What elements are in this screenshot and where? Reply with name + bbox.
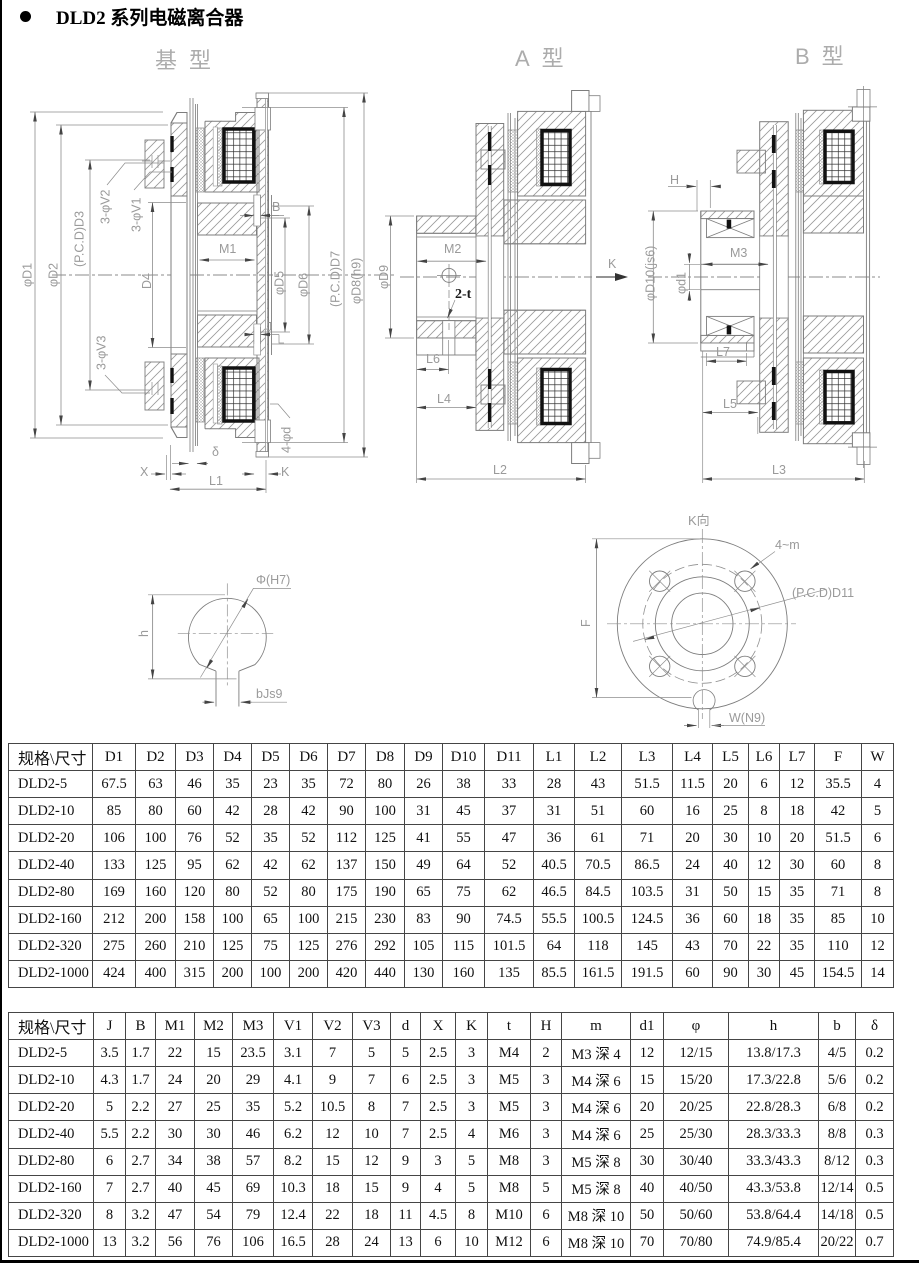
svg-text:L1: L1	[209, 474, 223, 488]
svg-text:B: B	[272, 200, 280, 214]
svg-text:4-φd: 4-φd	[280, 427, 294, 453]
svg-text:φD1: φD1	[21, 263, 35, 287]
svg-text:M1: M1	[219, 242, 236, 256]
svg-text:(P.C.D)D7: (P.C.D)D7	[329, 251, 343, 307]
svg-text:L7: L7	[716, 345, 730, 359]
svg-text:4~m: 4~m	[775, 538, 800, 552]
svg-text:φD5: φD5	[273, 271, 287, 295]
svg-text:δ: δ	[212, 445, 219, 459]
svg-text:B型: B型	[795, 44, 856, 69]
svg-text:2-t: 2-t	[455, 287, 472, 302]
svg-text:K: K	[281, 465, 290, 479]
svg-text:(P.C.D)D11: (P.C.D)D11	[792, 586, 854, 600]
svg-text:L5: L5	[723, 397, 737, 411]
svg-text:φD6: φD6	[297, 273, 311, 297]
svg-text:L6: L6	[426, 352, 440, 366]
svg-text:φD9: φD9	[377, 265, 391, 289]
svg-text:X: X	[140, 465, 149, 479]
svg-text:φD10(js6): φD10(js6)	[644, 246, 658, 301]
svg-text:L3: L3	[772, 463, 786, 477]
svg-text:M2: M2	[444, 242, 461, 256]
svg-text:K: K	[608, 257, 617, 271]
svg-text:M3: M3	[730, 246, 747, 260]
svg-text:K向: K向	[688, 513, 710, 528]
svg-text:D4: D4	[140, 273, 154, 289]
svg-text:(P.C.D)D3: (P.C.D)D3	[73, 211, 87, 267]
svg-text:h: h	[137, 630, 151, 637]
svg-text:L2: L2	[493, 463, 507, 477]
svg-text:基型: 基型	[155, 48, 223, 73]
svg-text:L4: L4	[437, 392, 451, 406]
svg-text:W(N9): W(N9)	[729, 711, 765, 725]
svg-text:φD2: φD2	[47, 263, 61, 287]
svg-text:φD8(h9): φD8(h9)	[350, 258, 364, 304]
svg-text:3-φV2: 3-φV2	[99, 189, 113, 224]
svg-text:3-φV1: 3-φV1	[130, 197, 144, 232]
svg-text:Φ(H7): Φ(H7)	[256, 573, 290, 587]
svg-text:bJs9: bJs9	[256, 687, 282, 701]
svg-text:φd1: φd1	[675, 272, 689, 294]
svg-text:3-φV3: 3-φV3	[95, 335, 109, 370]
svg-text:A型: A型	[515, 46, 576, 71]
svg-text:F: F	[579, 619, 593, 627]
svg-text:H: H	[670, 173, 679, 187]
